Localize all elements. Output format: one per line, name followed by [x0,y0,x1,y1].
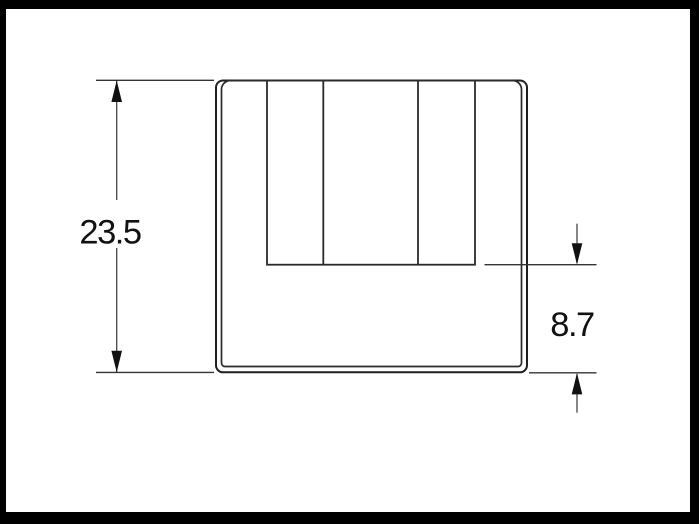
svg-text:23.5: 23.5 [79,214,140,252]
svg-text:8.7: 8.7 [550,306,594,344]
